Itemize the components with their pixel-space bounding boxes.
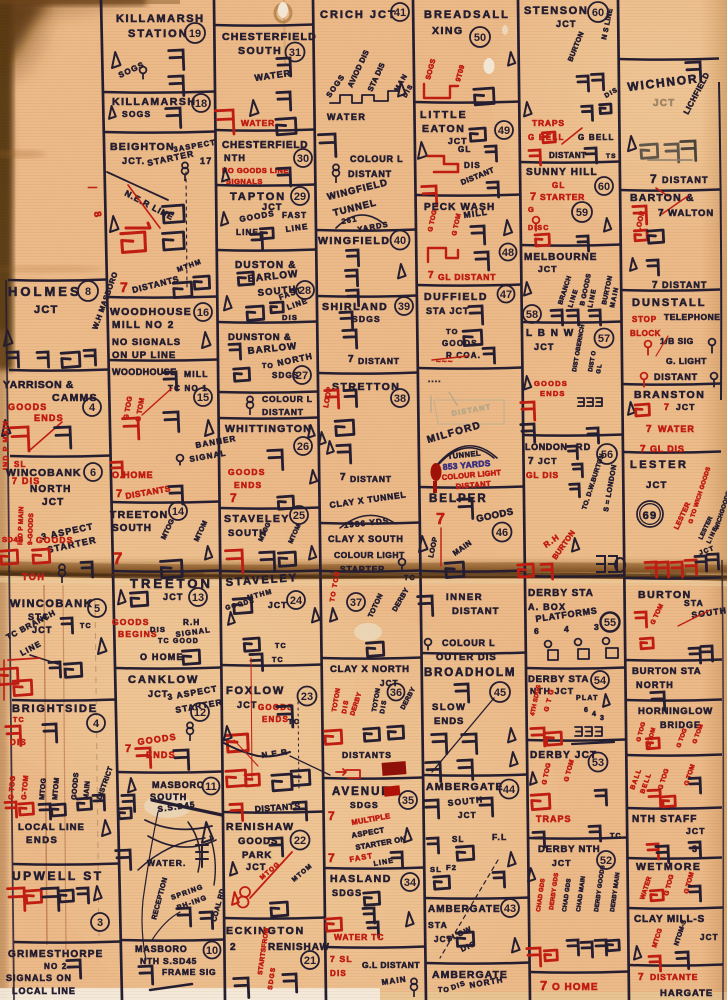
svg-text:7: 7: [540, 978, 548, 993]
svg-text:TC: TC: [404, 575, 416, 582]
svg-text:JCT: JCT: [676, 402, 696, 412]
svg-text:STA JCT: STA JCT: [426, 306, 470, 316]
svg-text:DIS: DIS: [330, 969, 347, 978]
svg-text:JCT: JCT: [653, 98, 676, 109]
svg-text:3: 3: [97, 917, 103, 929]
svg-text:15: 15: [197, 392, 209, 404]
svg-text:TO: TO: [262, 363, 274, 370]
svg-text:STA: STA: [428, 920, 448, 930]
svg-text:....: ....: [428, 375, 442, 384]
svg-text:49: 49: [498, 125, 510, 137]
svg-text:23: 23: [301, 691, 313, 703]
svg-text:JCT: JCT: [556, 19, 577, 29]
svg-text:JCT: JCT: [237, 700, 258, 710]
svg-text:O.HOME: O.HOME: [112, 470, 153, 480]
svg-text:JCT: JCT: [163, 592, 184, 602]
svg-text:OUTER DIS: OUTER DIS: [436, 652, 497, 663]
svg-text:DISTANT: DISTANT: [452, 606, 499, 617]
svg-text:AMBERGATE: AMBERGATE: [428, 904, 501, 915]
svg-text:22: 22: [294, 835, 306, 847]
svg-text:60: 60: [598, 181, 610, 193]
svg-text:4: 4: [89, 402, 96, 414]
svg-text:WETMORE: WETMORE: [636, 861, 701, 873]
svg-text:JCT: JCT: [538, 264, 558, 274]
svg-text:7: 7: [340, 472, 347, 483]
svg-text:DISTANT: DISTANT: [654, 372, 698, 382]
svg-text:TREETON: TREETON: [110, 509, 168, 521]
svg-text:14: 14: [172, 506, 185, 518]
svg-text:LITTLE: LITTLE: [420, 109, 468, 121]
svg-text:CLAY X NORTH: CLAY X NORTH: [330, 664, 410, 675]
svg-text:WOODHOUSE: WOODHOUSE: [110, 306, 192, 318]
svg-text:PARK: PARK: [242, 850, 272, 861]
svg-text:7: 7: [650, 172, 658, 186]
svg-text:JCT: JCT: [246, 862, 267, 872]
svg-text:GL: GL: [458, 145, 472, 154]
svg-text:SOUTH: SOUTH: [238, 45, 282, 57]
svg-text:CHESTERFIELD: CHESTERFIELD: [222, 31, 317, 43]
svg-text:SOGS: SOGS: [122, 109, 151, 119]
svg-text:F2: F2: [446, 863, 457, 872]
svg-text:ENDS: ENDS: [540, 389, 566, 398]
svg-text:WATER: WATER: [327, 112, 366, 122]
svg-text:7 SL: 7 SL: [330, 954, 353, 964]
svg-text:EATON: EATON: [422, 123, 465, 135]
svg-text:R.H: R.H: [183, 618, 200, 627]
svg-text:STARTER: STARTER: [540, 192, 585, 202]
svg-text:TC: TC: [275, 643, 287, 650]
svg-text:JCT: JCT: [552, 858, 572, 868]
svg-text:7: 7: [428, 270, 435, 281]
svg-text:WINCOBANK: WINCOBANK: [6, 467, 82, 479]
svg-text:XING: XING: [432, 25, 464, 37]
svg-text:50: 50: [474, 32, 486, 44]
svg-text:TO: TO: [446, 327, 459, 336]
svg-text:59: 59: [576, 207, 588, 219]
svg-text:58: 58: [526, 309, 538, 321]
svg-text:7: 7: [125, 743, 132, 755]
svg-text:DISTANTE: DISTANTE: [650, 972, 698, 982]
svg-text:7: 7: [530, 191, 537, 203]
svg-text:DISTANT: DISTANT: [662, 175, 709, 185]
svg-text:INNER: INNER: [446, 592, 483, 603]
svg-text:TC GOOD: TC GOOD: [158, 638, 199, 645]
svg-text:30: 30: [297, 153, 309, 165]
svg-text:DISTANT: DISTANT: [662, 280, 707, 290]
svg-text:2: 2: [230, 942, 237, 953]
svg-text:MILL: MILL: [184, 369, 209, 379]
svg-text:TC: TC: [610, 833, 622, 840]
svg-text:WATER.: WATER.: [147, 858, 187, 868]
svg-text:BREADSALL: BREADSALL: [424, 9, 510, 21]
svg-text:21: 21: [304, 955, 316, 967]
svg-text:GOODS: GOODS: [442, 339, 478, 348]
svg-text:JCT: JCT: [34, 304, 58, 316]
svg-text:47: 47: [500, 289, 512, 301]
svg-text:48: 48: [502, 247, 514, 259]
svg-text:11: 11: [205, 781, 217, 793]
svg-text:24: 24: [290, 595, 303, 607]
svg-text:GOODS: GOODS: [36, 535, 74, 545]
svg-text:KILLAMARSH: KILLAMARSH: [112, 96, 196, 108]
svg-text:25: 25: [293, 510, 305, 522]
svg-text:TO: TO: [438, 987, 450, 994]
svg-text:7: 7: [436, 511, 446, 528]
svg-text:13: 13: [192, 592, 204, 604]
svg-text:4: 4: [564, 624, 570, 634]
svg-text:4: 4: [93, 718, 100, 730]
svg-text:MASBORO: MASBORO: [152, 780, 205, 790]
svg-text:WATER: WATER: [241, 118, 275, 128]
svg-text:JCT: JCT: [534, 342, 555, 352]
svg-text:SIGNALS ON: SIGNALS ON: [6, 973, 72, 983]
svg-text:3: 3: [600, 715, 605, 722]
svg-text:FAST: FAST: [282, 211, 307, 220]
svg-text:7: 7: [640, 444, 647, 455]
svg-text:TRAPS: TRAPS: [532, 118, 565, 128]
svg-text:RENISHAW: RENISHAW: [268, 942, 330, 953]
svg-text:DERBY STA: DERBY STA: [528, 674, 589, 685]
svg-text:JCT: JCT: [538, 456, 558, 466]
svg-text:7: 7: [120, 279, 129, 295]
svg-text:JCT: JCT: [686, 826, 706, 836]
svg-text:SLOW: SLOW: [432, 702, 467, 713]
svg-text:NTH STAFF: NTH STAFF: [632, 814, 698, 825]
svg-text:TS: TS: [606, 153, 617, 160]
svg-text:NO 2: NO 2: [44, 962, 67, 971]
svg-text:SDGS: SDGS: [332, 888, 362, 898]
svg-text:SD4S: SD4S: [2, 535, 24, 544]
svg-text:DERBY STA: DERBY STA: [528, 588, 594, 599]
svg-text:ENDS: ENDS: [34, 413, 64, 423]
svg-text:7: 7: [328, 851, 336, 865]
svg-text:JCT.: JCT.: [122, 156, 145, 166]
svg-text:7: 7: [664, 402, 670, 412]
svg-text:BLOCK: BLOCK: [630, 329, 661, 338]
svg-text:16: 16: [197, 307, 209, 319]
svg-text:~~~: ~~~: [436, 357, 454, 366]
svg-text:35: 35: [402, 795, 414, 807]
svg-text:8: 8: [85, 286, 91, 298]
svg-text:27: 27: [296, 370, 308, 382]
svg-text:HOLMES: HOLMES: [8, 284, 82, 299]
svg-text:STA: STA: [684, 598, 704, 608]
svg-text:CRICH JCT: CRICH JCT: [320, 9, 397, 21]
svg-text:GL: GL: [552, 181, 566, 190]
svg-text:53: 53: [592, 757, 604, 769]
svg-text:GOODS: GOODS: [534, 379, 568, 388]
svg-text:17: 17: [200, 156, 212, 166]
svg-text:NTH: NTH: [224, 153, 246, 163]
svg-text:FOXLOW: FOXLOW: [226, 685, 285, 697]
svg-text:BURTON STA: BURTON STA: [632, 666, 701, 677]
svg-text:7: 7: [116, 488, 123, 500]
svg-text:DUNSTALL: DUNSTALL: [632, 297, 706, 309]
svg-text:SIGNALS: SIGNALS: [226, 177, 263, 186]
svg-text:FRAME SIG: FRAME SIG: [162, 967, 216, 977]
svg-text:44: 44: [503, 784, 516, 796]
svg-text:TC: TC: [13, 717, 25, 724]
svg-text:STARTER: STARTER: [340, 564, 385, 574]
svg-text:RENISHAW: RENISHAW: [226, 821, 295, 833]
svg-text:STRETTON: STRETTON: [332, 381, 400, 393]
svg-text:LOCAL LINE: LOCAL LINE: [12, 986, 76, 996]
svg-text:STAVELEY: STAVELEY: [224, 513, 290, 525]
svg-text:AMBERGATE: AMBERGATE: [426, 781, 504, 793]
svg-text:STATION: STATION: [128, 28, 189, 40]
svg-text:NTH S.SD45: NTH S.SD45: [140, 956, 197, 966]
svg-text:26: 26: [297, 441, 309, 453]
svg-text:O HOME: O HOME: [552, 982, 599, 993]
svg-text:COLOUR L: COLOUR L: [442, 638, 495, 648]
svg-text:DERBY NTH: DERBY NTH: [538, 844, 600, 855]
svg-text:WALTON: WALTON: [668, 208, 714, 219]
svg-text:7: 7: [528, 456, 535, 467]
svg-text:JCT: JCT: [42, 497, 65, 508]
svg-text:JCT: JCT: [268, 600, 288, 610]
svg-text:GL DISTANT: GL DISTANT: [438, 272, 496, 282]
svg-text:UPWELL ST: UPWELL ST: [12, 869, 104, 883]
svg-text:TELEPHONE: TELEPHONE: [664, 312, 720, 322]
svg-text:STOP: STOP: [632, 315, 657, 324]
svg-text:18: 18: [195, 98, 207, 110]
svg-text:GOODS: GOODS: [228, 467, 266, 477]
svg-text:ENDS: ENDS: [234, 480, 262, 490]
svg-text:CANKLOW: CANKLOW: [128, 674, 199, 686]
svg-text:JCT: JCT: [148, 689, 169, 699]
svg-text:LOCAL LINE: LOCAL LINE: [18, 822, 85, 833]
svg-text:7: 7: [230, 491, 238, 505]
svg-text:SHIRLAND: SHIRLAND: [322, 301, 388, 313]
svg-text:HARGATE: HARGATE: [660, 988, 713, 999]
svg-text:HASLAND: HASLAND: [330, 873, 392, 885]
svg-text:SL: SL: [430, 865, 442, 874]
svg-text:AVENUE: AVENUE: [332, 786, 391, 798]
svg-text:ON UP LINE: ON UP LINE: [112, 350, 176, 361]
svg-text:MILL NO 2: MILL NO 2: [112, 320, 175, 331]
svg-text:JCT: JCT: [458, 811, 477, 820]
svg-text:38: 38: [394, 393, 406, 405]
svg-text:CLAY X SOUTH: CLAY X SOUTH: [328, 534, 404, 544]
svg-text:WINGFIELD: WINGFIELD: [318, 235, 390, 247]
svg-text:45: 45: [494, 687, 506, 699]
svg-text:6: 6: [90, 467, 96, 479]
svg-text:TC: TC: [80, 623, 92, 630]
svg-text:7: 7: [658, 208, 665, 219]
svg-text:NO SIGNALS: NO SIGNALS: [112, 337, 181, 348]
svg-text:DERBY JCT: DERBY JCT: [530, 750, 597, 761]
svg-text:COLOUR L: COLOUR L: [350, 154, 403, 164]
svg-text:TOH: TOH: [22, 572, 45, 582]
svg-text:HORNINGLOW: HORNINGLOW: [638, 706, 713, 717]
svg-text:JCT: JCT: [646, 480, 668, 491]
svg-text:WATER: WATER: [658, 424, 695, 434]
svg-text:DISTANT: DISTANT: [262, 407, 304, 417]
svg-text:5: 5: [94, 603, 100, 615]
svg-text:F.L: F.L: [492, 832, 507, 842]
svg-text:46: 46: [496, 527, 508, 539]
svg-text:BROADHOLM: BROADHOLM: [424, 667, 516, 679]
svg-text:G.L DISTANT: G.L DISTANT: [362, 960, 420, 970]
svg-text:DISTANT: DISTANT: [549, 151, 587, 160]
svg-text:34: 34: [404, 877, 417, 889]
svg-text:GOODS: GOODS: [8, 402, 48, 412]
svg-text:MELBOURNE: MELBOURNE: [524, 252, 597, 263]
svg-text:7: 7: [328, 809, 336, 823]
svg-text:6: 6: [534, 626, 540, 636]
svg-text:SOUTH: SOUTH: [112, 523, 152, 534]
svg-text:YARRISON &: YARRISON &: [3, 379, 74, 391]
svg-text:SDGS: SDGS: [350, 800, 379, 810]
svg-text:TRAPS: TRAPS: [536, 814, 572, 824]
svg-text:CLAY MILL-S: CLAY MILL-S: [634, 914, 705, 925]
svg-text:29: 29: [294, 191, 306, 203]
svg-text:BRIDGE: BRIDGE: [660, 720, 701, 730]
svg-text:CHESTERFIELD: CHESTERFIELD: [222, 140, 308, 151]
svg-text:12: 12: [194, 707, 206, 719]
svg-text:GL DIS: GL DIS: [650, 444, 685, 454]
svg-text:IND P MAIN: IND P MAIN: [3, 420, 10, 470]
svg-text:STENSON: STENSON: [524, 5, 588, 17]
svg-text:GOODS: GOODS: [112, 617, 150, 627]
svg-text:37: 37: [350, 597, 362, 609]
svg-text:—: —: [88, 182, 98, 192]
svg-text:COLOUR L: COLOUR L: [262, 394, 313, 404]
svg-text:SL: SL: [452, 835, 465, 844]
svg-text:41: 41: [394, 7, 406, 19]
svg-text:LONDON: LONDON: [525, 442, 568, 452]
svg-text:JCT: JCT: [700, 933, 719, 942]
svg-text:57: 57: [598, 333, 610, 345]
svg-text:40: 40: [394, 235, 406, 247]
svg-text:DISTANTS: DISTANTS: [342, 750, 392, 760]
svg-text:TC: TC: [272, 657, 284, 664]
svg-text:DIS: DIS: [282, 313, 298, 322]
svg-text:DUNSTON &: DUNSTON &: [228, 332, 292, 343]
svg-text:DIS: DIS: [10, 738, 27, 747]
svg-text:WHITTINGTON: WHITTINGTON: [225, 423, 312, 435]
svg-text:7: 7: [652, 280, 659, 291]
svg-text:19: 19: [189, 28, 201, 40]
svg-text:ENDS: ENDS: [26, 835, 58, 846]
svg-text:PLAT: PLAT: [576, 695, 599, 702]
svg-text:DISTANT: DISTANT: [350, 474, 392, 484]
svg-text:LESTER: LESTER: [630, 459, 688, 471]
svg-text:ENDS: ENDS: [434, 716, 464, 727]
svg-text:DISTANT: DISTANT: [358, 356, 400, 366]
svg-text:COLOUR LIGHT: COLOUR LIGHT: [334, 550, 405, 560]
svg-text:7: 7: [646, 424, 653, 435]
svg-text:SUNNY HILL: SUNNY HILL: [526, 167, 598, 178]
svg-text:55: 55: [604, 617, 616, 629]
svg-text:7: 7: [113, 549, 124, 568]
svg-text:DIS: DIS: [464, 161, 481, 170]
svg-text:36: 36: [390, 687, 402, 699]
svg-text:69: 69: [643, 510, 658, 522]
svg-text:6: 6: [584, 707, 589, 714]
svg-text:54: 54: [594, 675, 607, 687]
svg-text:BRIGHTSIDE: BRIGHTSIDE: [12, 703, 98, 715]
svg-text:43: 43: [504, 903, 516, 915]
svg-text:NORTH: NORTH: [30, 484, 72, 495]
svg-text:WATER TC: WATER TC: [334, 932, 384, 942]
svg-text:9-GOODS: 9-GOODS: [27, 512, 35, 545]
svg-text:DIS: DIS: [150, 625, 166, 634]
svg-text:7: 7: [638, 972, 645, 983]
svg-text:39: 39: [398, 301, 410, 313]
svg-text:NORTH: NORTH: [636, 680, 674, 690]
svg-text:4: 4: [592, 711, 597, 718]
svg-text:O HOME: O HOME: [140, 652, 184, 662]
svg-text:BEIGHTON: BEIGHTON: [110, 141, 175, 153]
svg-text:GRIMESTHORPE: GRIMESTHORPE: [8, 949, 104, 960]
svg-text:ENDS: ENDS: [262, 715, 289, 724]
svg-text:G: G: [528, 205, 535, 214]
svg-text:SDGS: SDGS: [352, 314, 381, 324]
svg-text:GL DIS: GL DIS: [526, 470, 559, 480]
svg-text:L B N W: L B N W: [526, 328, 575, 339]
svg-text:7: 7: [348, 354, 355, 365]
svg-text:G BELL: G BELL: [578, 133, 615, 142]
svg-text:G. LIGHT: G. LIGHT: [666, 356, 707, 366]
svg-text:DISC: DISC: [528, 225, 550, 232]
svg-text:MASBORO: MASBORO: [135, 944, 188, 954]
svg-text:60: 60: [592, 7, 604, 19]
svg-text:BRANSTON: BRANSTON: [634, 389, 705, 401]
svg-text:10: 10: [206, 945, 218, 957]
svg-text:3: 3: [594, 622, 600, 632]
svg-text:DUFFIELD: DUFFIELD: [424, 291, 488, 303]
